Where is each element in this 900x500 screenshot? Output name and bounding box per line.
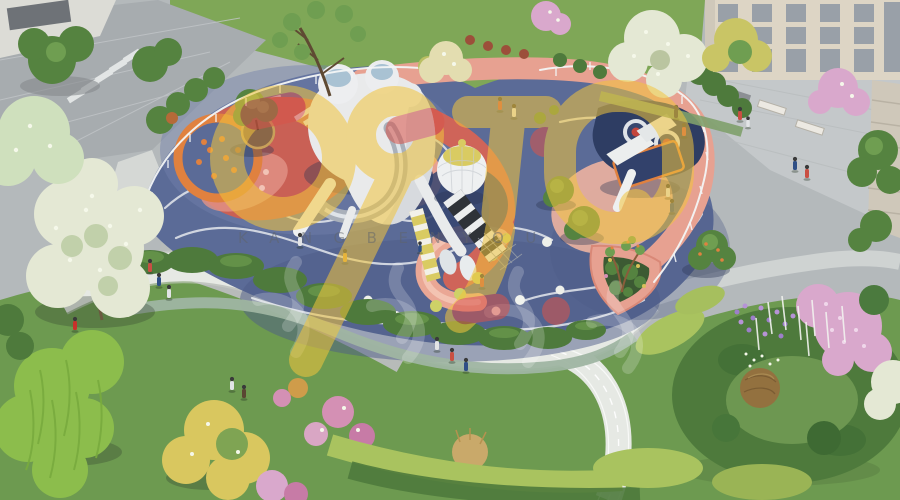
topiary-ball	[740, 368, 780, 408]
playground-render: KANGBENYOU	[0, 0, 900, 500]
scene: KANGBENYOU	[0, 0, 900, 500]
brand-letters-watermark: KANGBENYOU	[238, 229, 558, 247]
